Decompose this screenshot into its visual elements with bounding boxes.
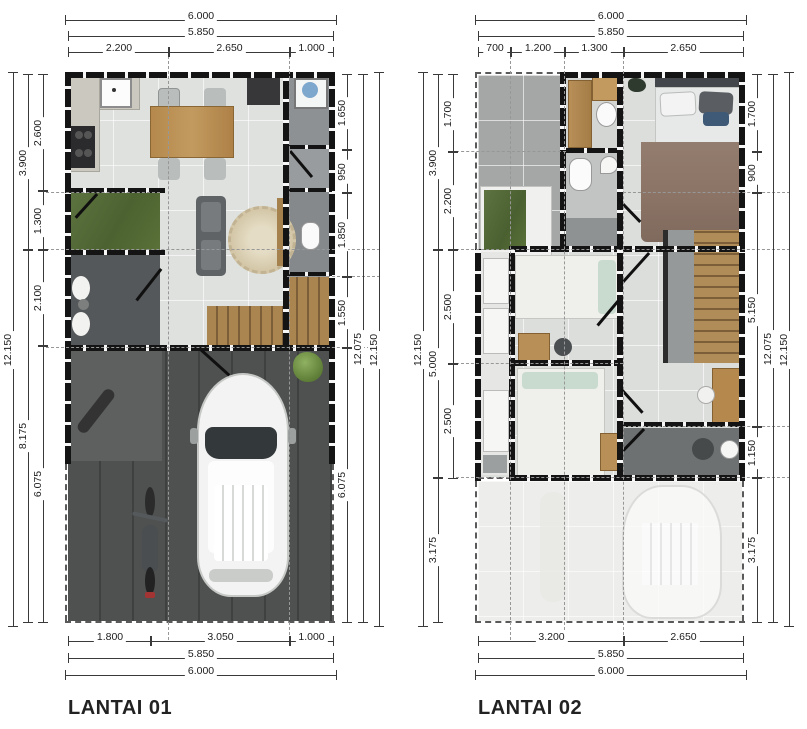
dim-label: 12.075 [762,329,774,367]
wardrobe-icon [568,80,592,148]
dim-segment: 12.150 [784,72,794,627]
dim-label: 1.000 [295,42,327,54]
ghost-motorcycle-icon [540,492,566,602]
bathroom2-mat [566,218,617,246]
corner-sink-icon [600,156,618,174]
dim-segment: 2.650 [623,636,744,646]
perimeter-wall-right [739,72,745,481]
dim-label: 6.000 [185,10,217,22]
motorcycle-icon [132,487,168,599]
grid-guide [510,56,511,640]
dim-label: 950 [336,160,348,184]
bed-pillow [659,91,696,117]
dim-segment: 2.650 [623,47,744,57]
dim-label: 5.150 [746,294,758,326]
dim-label: 2.650 [667,631,699,643]
dim-segment: 5.150 [752,192,762,428]
dim-segment: 6.000 [475,15,747,25]
dim-label: 2.500 [442,291,454,323]
bed-master-icon [655,78,739,244]
dim-segment: 2.200 [448,151,458,251]
dim-label: 1.300 [578,42,610,54]
ghost-car-icon [622,485,722,619]
dim-segment: 1.000 [289,47,334,57]
dim-label: 1.650 [336,96,348,128]
dim-segment: 1.850 [342,192,352,278]
dim-label: 3.050 [204,631,236,643]
floor-label-lantai-01: LANTAI 01 [68,697,172,720]
dim-label: 1.550 [336,296,348,328]
perimeter-wall-right [329,72,335,464]
dim-label: 6.075 [336,469,348,501]
dim-label: 5.850 [185,648,217,660]
dim-segment: 12.075 [358,74,368,623]
plot-boundary-bottom [475,621,745,623]
dim-segment: 1.200 [510,47,566,57]
dim-segment: 700 [478,47,512,57]
dim-label: 1.800 [94,631,126,643]
carport-concrete-pad [68,351,162,461]
vanity-bowl-icon [692,438,714,460]
plot-boundary-right [332,464,334,621]
grid-guide [46,249,380,250]
perimeter-wall-left [475,249,481,481]
moto-rear-wheel [145,567,155,595]
car-rear-window [209,569,273,582]
dim-segment: 1.300 [38,190,48,251]
dim-segment: 5.000 [433,249,443,479]
tree-icon [293,352,323,382]
dim-label: 6.000 [185,665,217,677]
dim-label: 1.700 [746,97,758,129]
planter-basin-icon [72,312,90,336]
grid-guide [46,192,160,193]
rooms-bottom-wall [509,475,745,481]
dim-segment: 6.075 [342,347,352,623]
dim-segment: 1.000 [289,636,334,646]
dim-segment: 5.850 [478,31,744,41]
dim-label: 2.650 [213,42,245,54]
desk-chair-icon [697,386,715,404]
dim-label: 5.850 [185,26,217,38]
dim-label: 2.200 [442,185,454,217]
dim-segment: 1.700 [448,74,458,153]
dining-table-icon [150,106,234,158]
dim-label: 2.650 [667,42,699,54]
stairs-icon [207,306,284,345]
dim-segment: 6.000 [65,670,337,680]
dim-segment: 1.700 [752,74,762,153]
plot-boundary-left [475,481,477,621]
moto-tail-light [145,592,155,598]
dim-segment: 3.175 [752,477,762,623]
sink-icon [596,102,617,127]
sink-icon [720,440,739,459]
bed-pillow [522,372,598,389]
shelf-icon [592,77,618,101]
dim-label: 2.100 [32,282,44,314]
dim-label: 6.000 [595,665,627,677]
dim-label: 1.150 [746,436,758,468]
dim-segment: 5.850 [68,31,334,41]
car-rear-hatch [214,485,268,561]
terrace-edge-dashed [475,72,477,249]
perimeter-wall-top [65,72,335,78]
plant-icon [628,78,646,92]
terrace-edge-dashed [475,72,563,74]
closet-unit [483,308,509,354]
dim-segment: 3.200 [478,636,625,646]
dim-segment: 2.650 [168,47,291,57]
dim-segment: 1.550 [342,276,352,349]
stove-burner-icon [75,131,83,139]
floorplan-sheet: 6.000 5.850 2.200 2.650 1.000 1.800 3.05… [0,0,807,729]
moto-body [142,525,158,573]
dim-label: 3.175 [746,534,758,566]
dim-segment: 2.500 [448,363,458,479]
toilet-icon [301,222,320,250]
bed-icon [517,368,605,476]
sofa-cushion [201,240,221,270]
dim-label: 6.000 [595,10,627,22]
dim-label: 1.300 [32,204,44,236]
dim-segment: 5.850 [68,653,334,663]
dim-label: 2.500 [442,405,454,437]
desk-icon [712,368,741,426]
dim-segment: 1.800 [68,636,152,646]
grid-guide [456,477,790,478]
dim-label: 2.200 [103,42,135,54]
nightstand-icon [518,333,550,361]
pot-icon [78,299,89,310]
bed-icon [515,255,620,319]
dim-label: 12.150 [412,330,424,368]
ghost-car-hatch [642,523,698,585]
floor-label-lantai-02: LANTAI 02 [478,697,582,720]
car-mirror [190,428,198,444]
dim-label: 12.150 [368,330,380,368]
garden-patch [484,190,526,250]
closet-unit [483,390,509,452]
perimeter-wall-left [65,72,71,464]
dim-label: 3.200 [535,631,567,643]
dim-label: 12.150 [778,330,790,368]
dim-segment: 1.300 [564,47,625,57]
dim-label: 3.900 [17,146,29,178]
car-icon [197,373,289,597]
dim-label: 2.600 [32,117,44,149]
plot-boundary-left [65,464,67,621]
dim-label: 1.000 [295,631,327,643]
bed-pillow-accent [703,112,729,126]
dim-label: 1.200 [522,42,554,54]
kitchen-sink-icon [100,78,132,108]
tall-cabinet-icon [247,75,280,105]
dim-segment: 5.850 [478,653,744,663]
garden-wall [65,250,165,255]
dim-segment: 2.600 [38,74,48,192]
dim-segment: 12.075 [768,74,778,623]
grid-guide [456,363,623,364]
washing-machine-drum-icon [302,82,318,98]
dim-segment: 1.650 [342,74,352,151]
dim-label: 3.900 [427,146,439,178]
dim-segment: 2.500 [448,249,458,365]
dim-label: 3.175 [427,534,439,566]
car-windshield [205,427,277,459]
closet-unit [483,258,509,304]
dim-label: 12.150 [2,330,14,368]
dim-segment: 6.000 [65,15,337,25]
dim-segment: 12.150 [374,72,384,627]
grid-guide [623,192,790,193]
dim-segment: 6.075 [38,345,48,623]
dim-segment: 6.000 [475,670,747,680]
terrace-partition-wall [560,72,566,252]
dim-label: 700 [483,42,507,54]
dim-label: 5.850 [595,648,627,660]
plot-boundary-bottom [65,621,335,623]
bath-partition-wall [287,145,332,149]
dim-segment: 2.100 [38,249,48,347]
sofa-cushion [201,202,221,232]
grid-guide [623,56,624,640]
bath-partition-wall [287,188,332,192]
dim-label: 900 [746,161,758,185]
stool-icon [554,338,572,356]
dim-label: 12.075 [352,329,364,367]
storage-box [483,455,507,473]
plot-boundary-right [742,481,744,621]
dim-label: 1.850 [336,219,348,251]
grid-guide [564,56,565,640]
dim-label: 5.000 [427,348,439,380]
stairs-landing-icon [287,277,332,345]
perimeter-wall-top [560,72,745,78]
grid-guide [168,56,169,640]
dim-label: 5.850 [595,26,627,38]
dim-segment: 2.200 [68,47,170,57]
dim-segment: 950 [342,149,352,194]
bed-headboard [655,78,739,87]
grid-guide [289,56,290,640]
grid-guide [46,347,380,348]
dim-segment: 3.050 [150,636,291,646]
dim-label: 1.700 [442,97,454,129]
dim-label: 8.175 [17,420,29,452]
grid-guide [456,249,790,250]
toilet-icon [569,158,592,191]
sink-drain-icon [112,88,116,92]
closet-bath-wall [566,148,617,153]
dim-segment: 3.175 [433,477,443,623]
planter-basin-icon [72,276,90,300]
moto-front-wheel [145,487,155,517]
grid-guide [623,426,790,427]
dim-segment: 900 [752,151,762,194]
dim-segment: 1.150 [752,426,762,479]
garden-patch [68,192,160,250]
dim-label: 6.075 [32,468,44,500]
grid-guide [456,151,566,152]
